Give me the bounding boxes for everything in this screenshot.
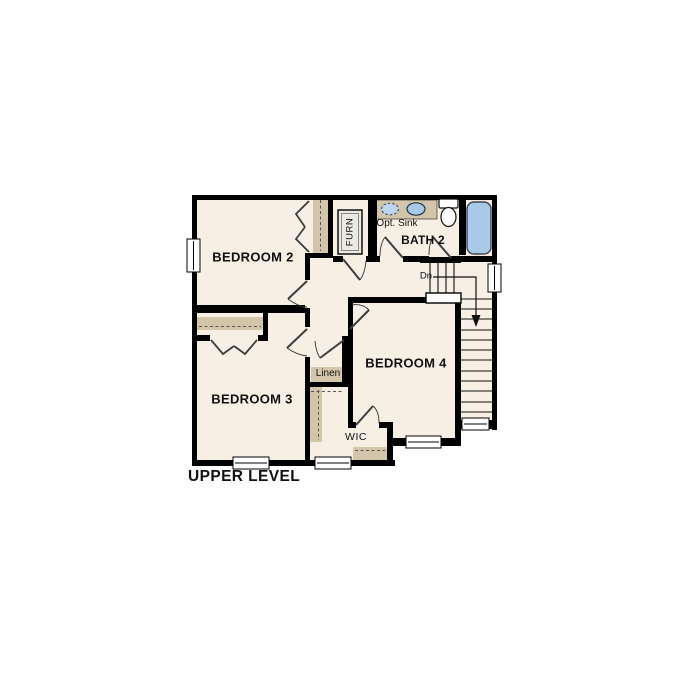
floorplan-page: BEDROOM 2 BEDROOM 3 BEDROOM 4 BATH 2 Opt…	[0, 0, 687, 687]
window-bedroom2-left	[187, 239, 200, 272]
bedroom3-closet-shelf	[197, 317, 263, 330]
floorplan-drawing	[0, 0, 687, 687]
label-opt-sink: Opt. Sink	[376, 219, 417, 229]
wic-bottom-shelf	[353, 447, 387, 460]
room-label-bedroom4: BEDROOM 4	[365, 357, 446, 370]
sink-optional	[382, 203, 399, 215]
label-wic: WIC	[345, 432, 367, 443]
toilet	[439, 199, 458, 227]
window-wic-bottom	[315, 457, 351, 469]
room-label-bath2: BATH 2	[401, 234, 445, 246]
room-label-bedroom2: BEDROOM 2	[212, 251, 293, 264]
stair-landing-halfwall	[426, 293, 461, 303]
wic-left-shelf	[310, 387, 322, 442]
window-stairwell-bottom	[462, 418, 489, 430]
window-stairs-right	[488, 264, 501, 292]
bathtub	[467, 202, 491, 254]
label-linen: Linen	[316, 369, 340, 379]
page-title: UPPER LEVEL	[188, 469, 300, 485]
window-bedroom4-bottom	[406, 436, 441, 448]
label-stairs-down: Dn	[420, 271, 432, 281]
sink	[407, 203, 425, 215]
label-furnace: FURN	[345, 218, 355, 246]
room-label-bedroom3: BEDROOM 3	[211, 393, 292, 406]
